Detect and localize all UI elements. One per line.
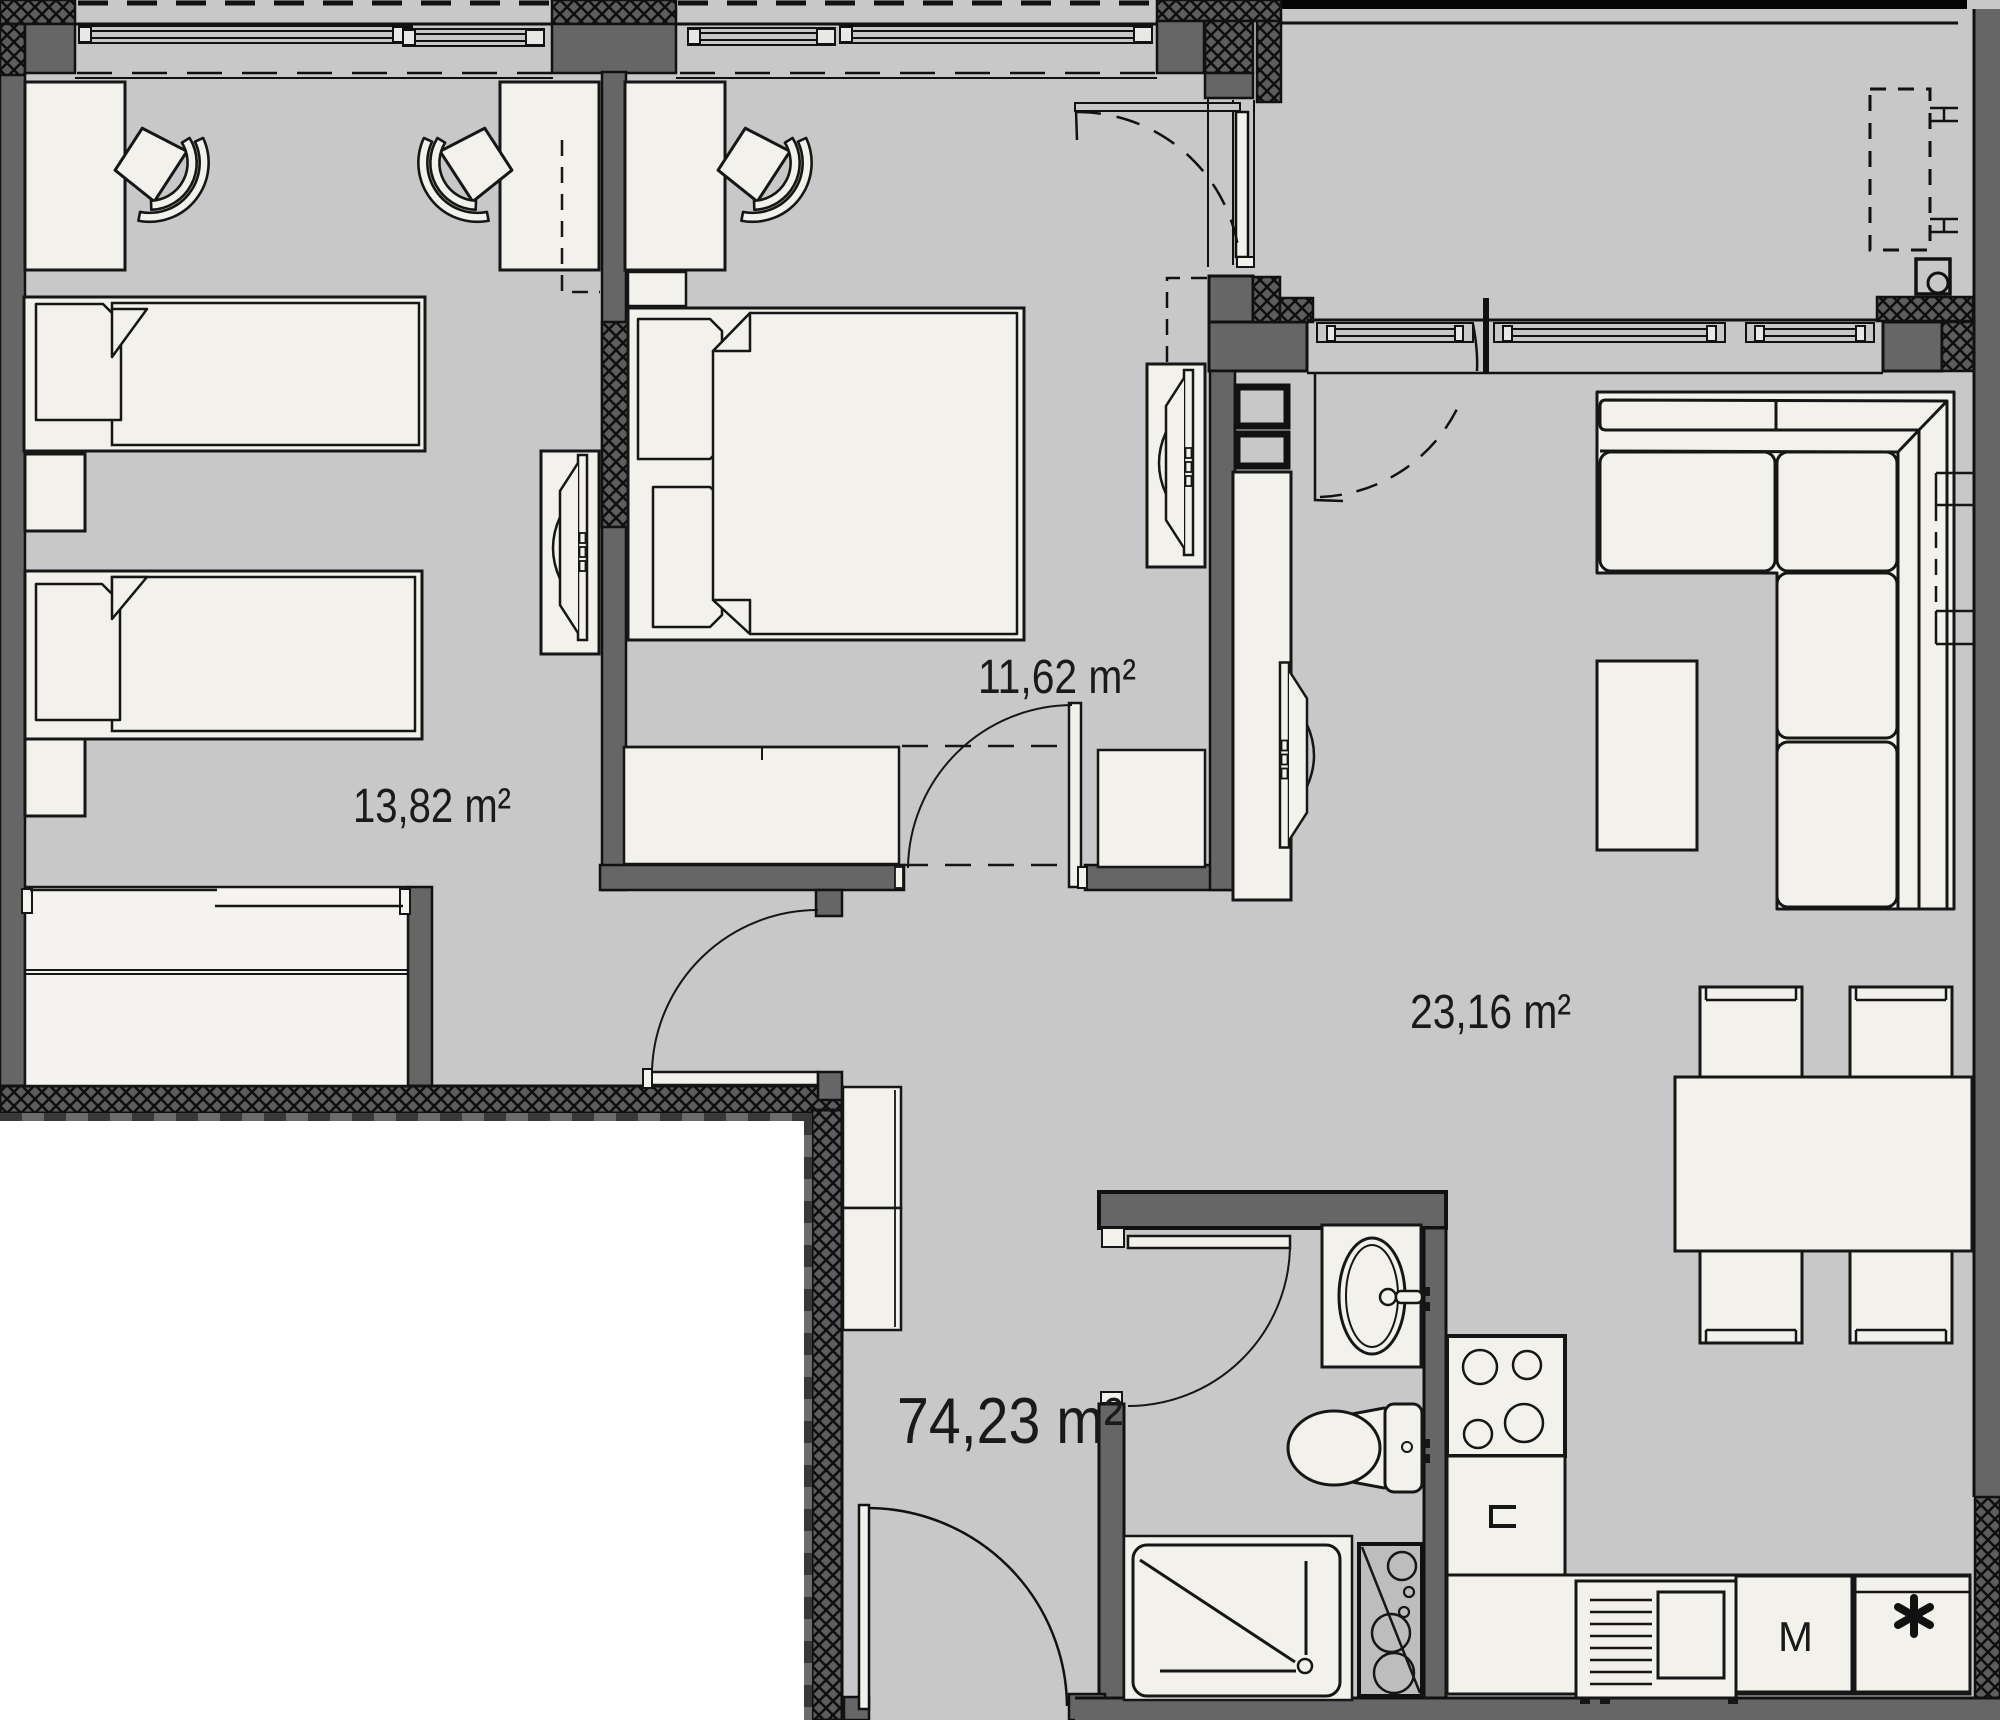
svg-text:13,82 m²: 13,82 m² [353, 780, 511, 833]
svg-text:M: M [1778, 1613, 1813, 1660]
svg-text:74,23 m²: 74,23 m² [897, 1384, 1123, 1457]
svg-text:11,62 m²: 11,62 m² [978, 651, 1136, 704]
svg-text:23,16 m²: 23,16 m² [1410, 986, 1571, 1039]
